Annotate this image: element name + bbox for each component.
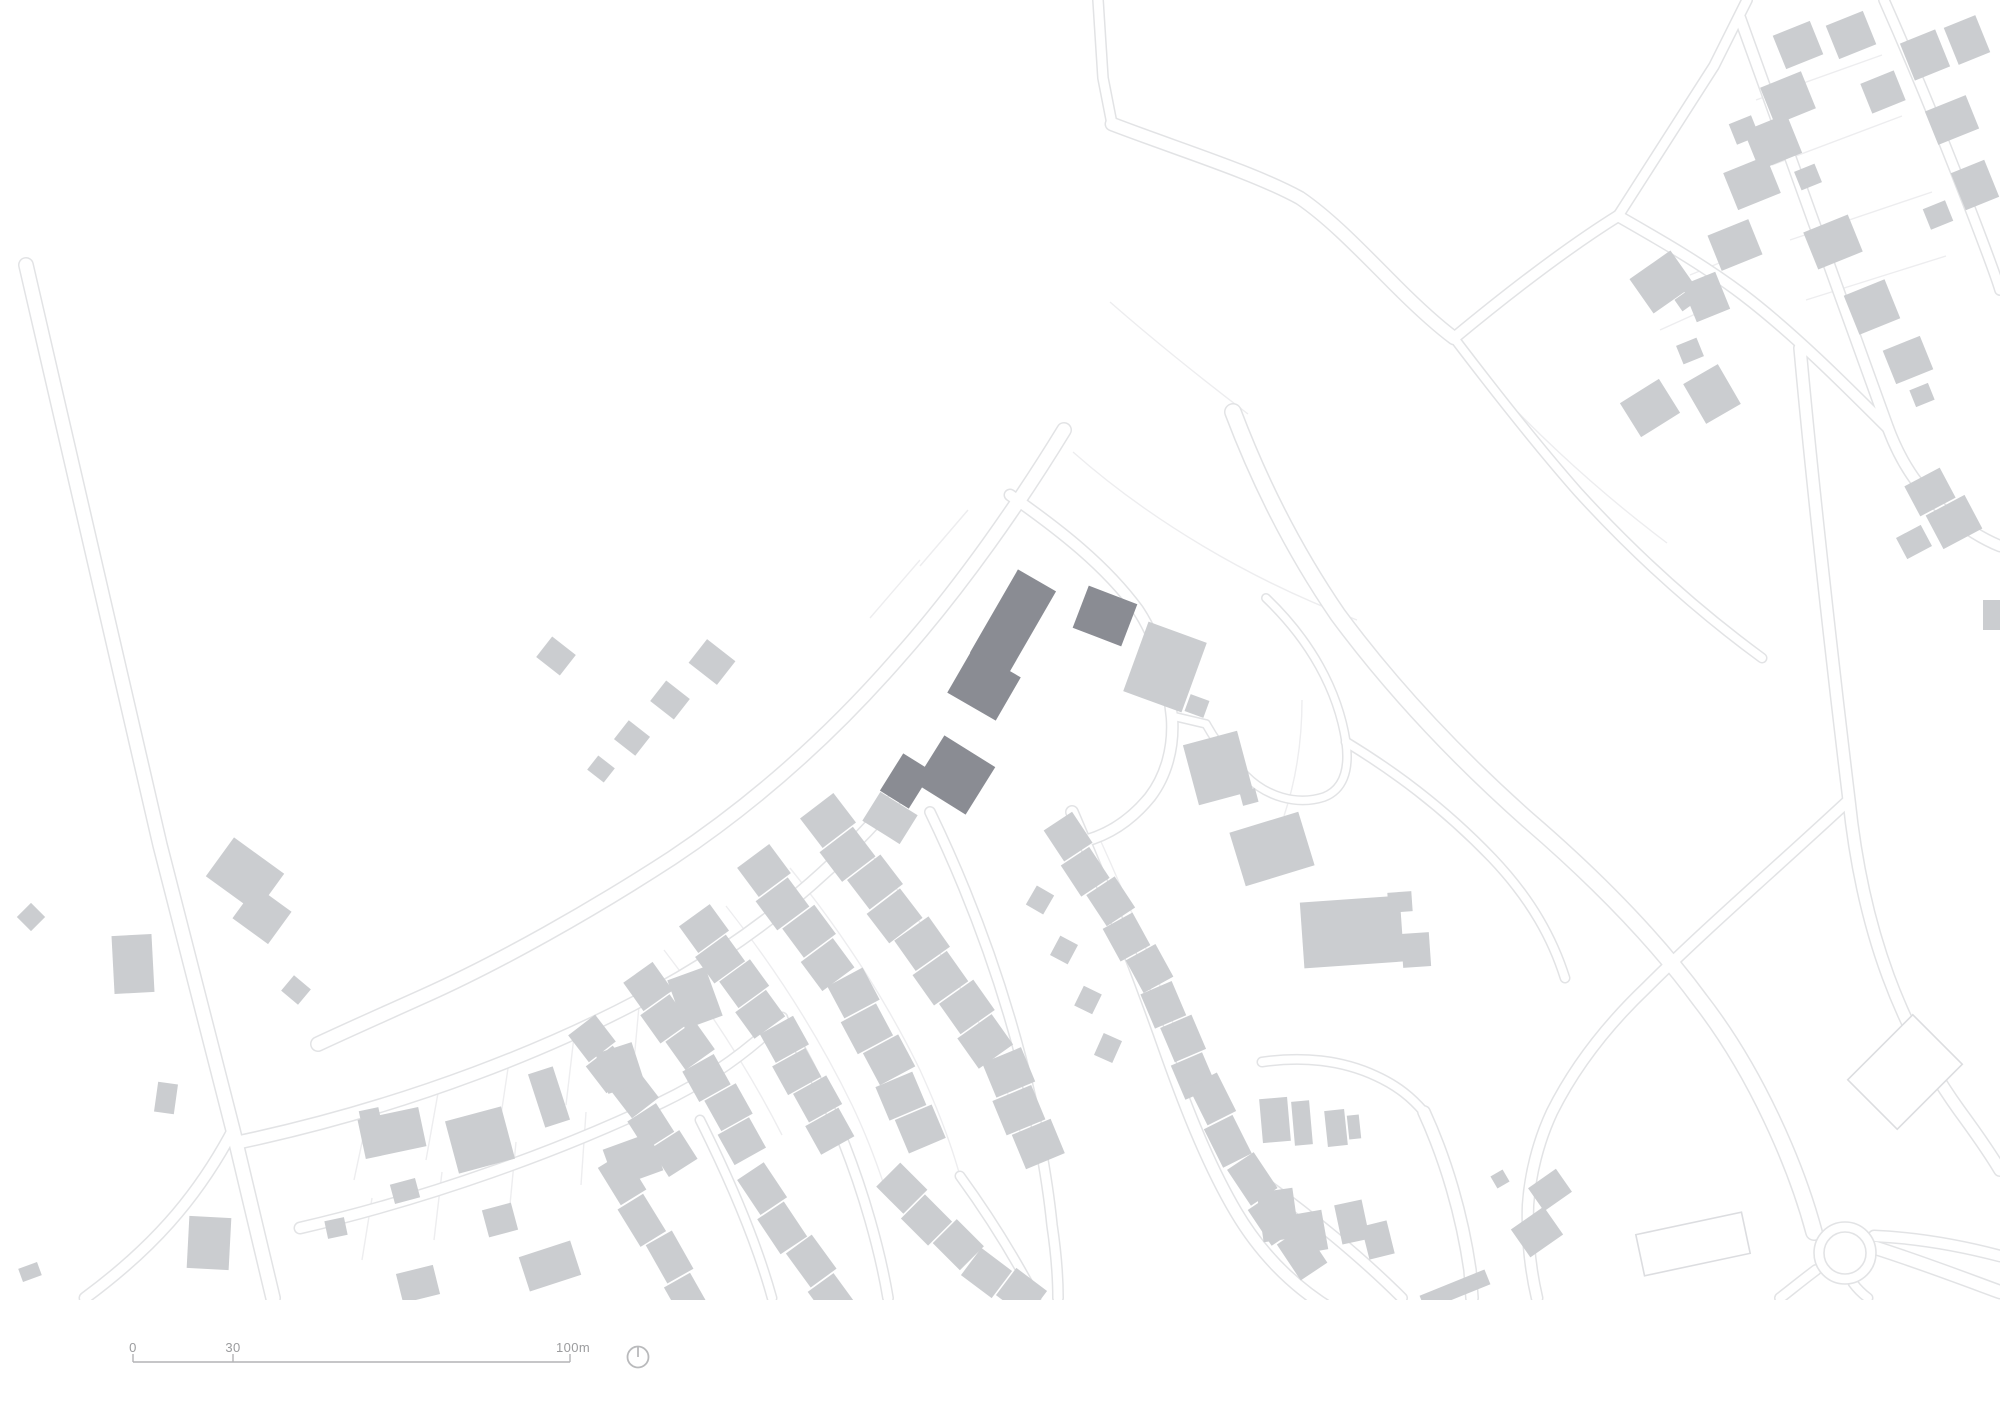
parcel-line [920, 510, 968, 566]
parcel-line [1110, 302, 1248, 414]
map-margin-mask [0, 1300, 2000, 1414]
building [1900, 29, 1950, 80]
building [689, 639, 736, 685]
building [112, 934, 155, 994]
building [1620, 379, 1680, 437]
scale-bar-label-zero: 0 [129, 1340, 137, 1355]
building [1683, 364, 1741, 424]
outline-building [1848, 1015, 1963, 1130]
building [1490, 1169, 1509, 1188]
road-surface [1454, 216, 1618, 338]
building [614, 720, 650, 756]
building [1361, 1220, 1394, 1259]
parcel-line [870, 560, 920, 618]
building [1074, 986, 1102, 1015]
building [1259, 1097, 1291, 1143]
building [536, 637, 576, 676]
building [396, 1265, 440, 1303]
building [587, 755, 615, 782]
parcel-line [581, 1112, 586, 1185]
road-surface [1233, 412, 1814, 1232]
roundabout [1814, 1222, 1876, 1284]
building [519, 1241, 581, 1292]
building [1324, 1109, 1348, 1147]
scale-bar-label-end: 100m [556, 1340, 590, 1355]
building [154, 1082, 178, 1114]
road-casing [1112, 124, 1454, 338]
building [1896, 525, 1932, 559]
road-surface [1424, 1112, 1472, 1298]
building [187, 1216, 232, 1270]
building [1511, 1207, 1563, 1258]
building [1826, 11, 1877, 59]
building [17, 903, 45, 931]
parcel-line [434, 1172, 442, 1240]
terrace-rows-layer [568, 793, 1327, 1326]
building [650, 681, 690, 720]
building [482, 1203, 518, 1238]
building [281, 975, 311, 1004]
road-casing [318, 430, 1064, 1044]
building [1676, 338, 1704, 365]
building [1229, 812, 1314, 887]
building [1944, 15, 1991, 65]
site-plan: 0 30 100m [0, 0, 2000, 1414]
building [1707, 219, 1762, 271]
scale-bar-label-mid: 30 [225, 1340, 240, 1355]
building [1347, 1114, 1361, 1139]
building [1401, 932, 1431, 968]
building [1291, 1100, 1313, 1145]
building [1773, 21, 1824, 69]
road-surface [1780, 1270, 1816, 1298]
outline-building [1636, 1212, 1750, 1276]
building [1909, 383, 1934, 407]
road-casing [85, 1130, 233, 1298]
building [528, 1066, 570, 1127]
building [1094, 1033, 1122, 1063]
building [1387, 891, 1412, 913]
building [1983, 600, 2000, 630]
building [1050, 936, 1078, 965]
road-surface [1112, 124, 1454, 338]
building [1026, 885, 1054, 914]
road-surface [318, 430, 1064, 1044]
building [1860, 70, 1905, 113]
site-plan-svg [0, 0, 2000, 1414]
building [18, 1262, 42, 1282]
building [1883, 336, 1934, 384]
building [1923, 200, 1953, 229]
roundabout-island [1824, 1232, 1866, 1274]
building [1185, 694, 1210, 718]
